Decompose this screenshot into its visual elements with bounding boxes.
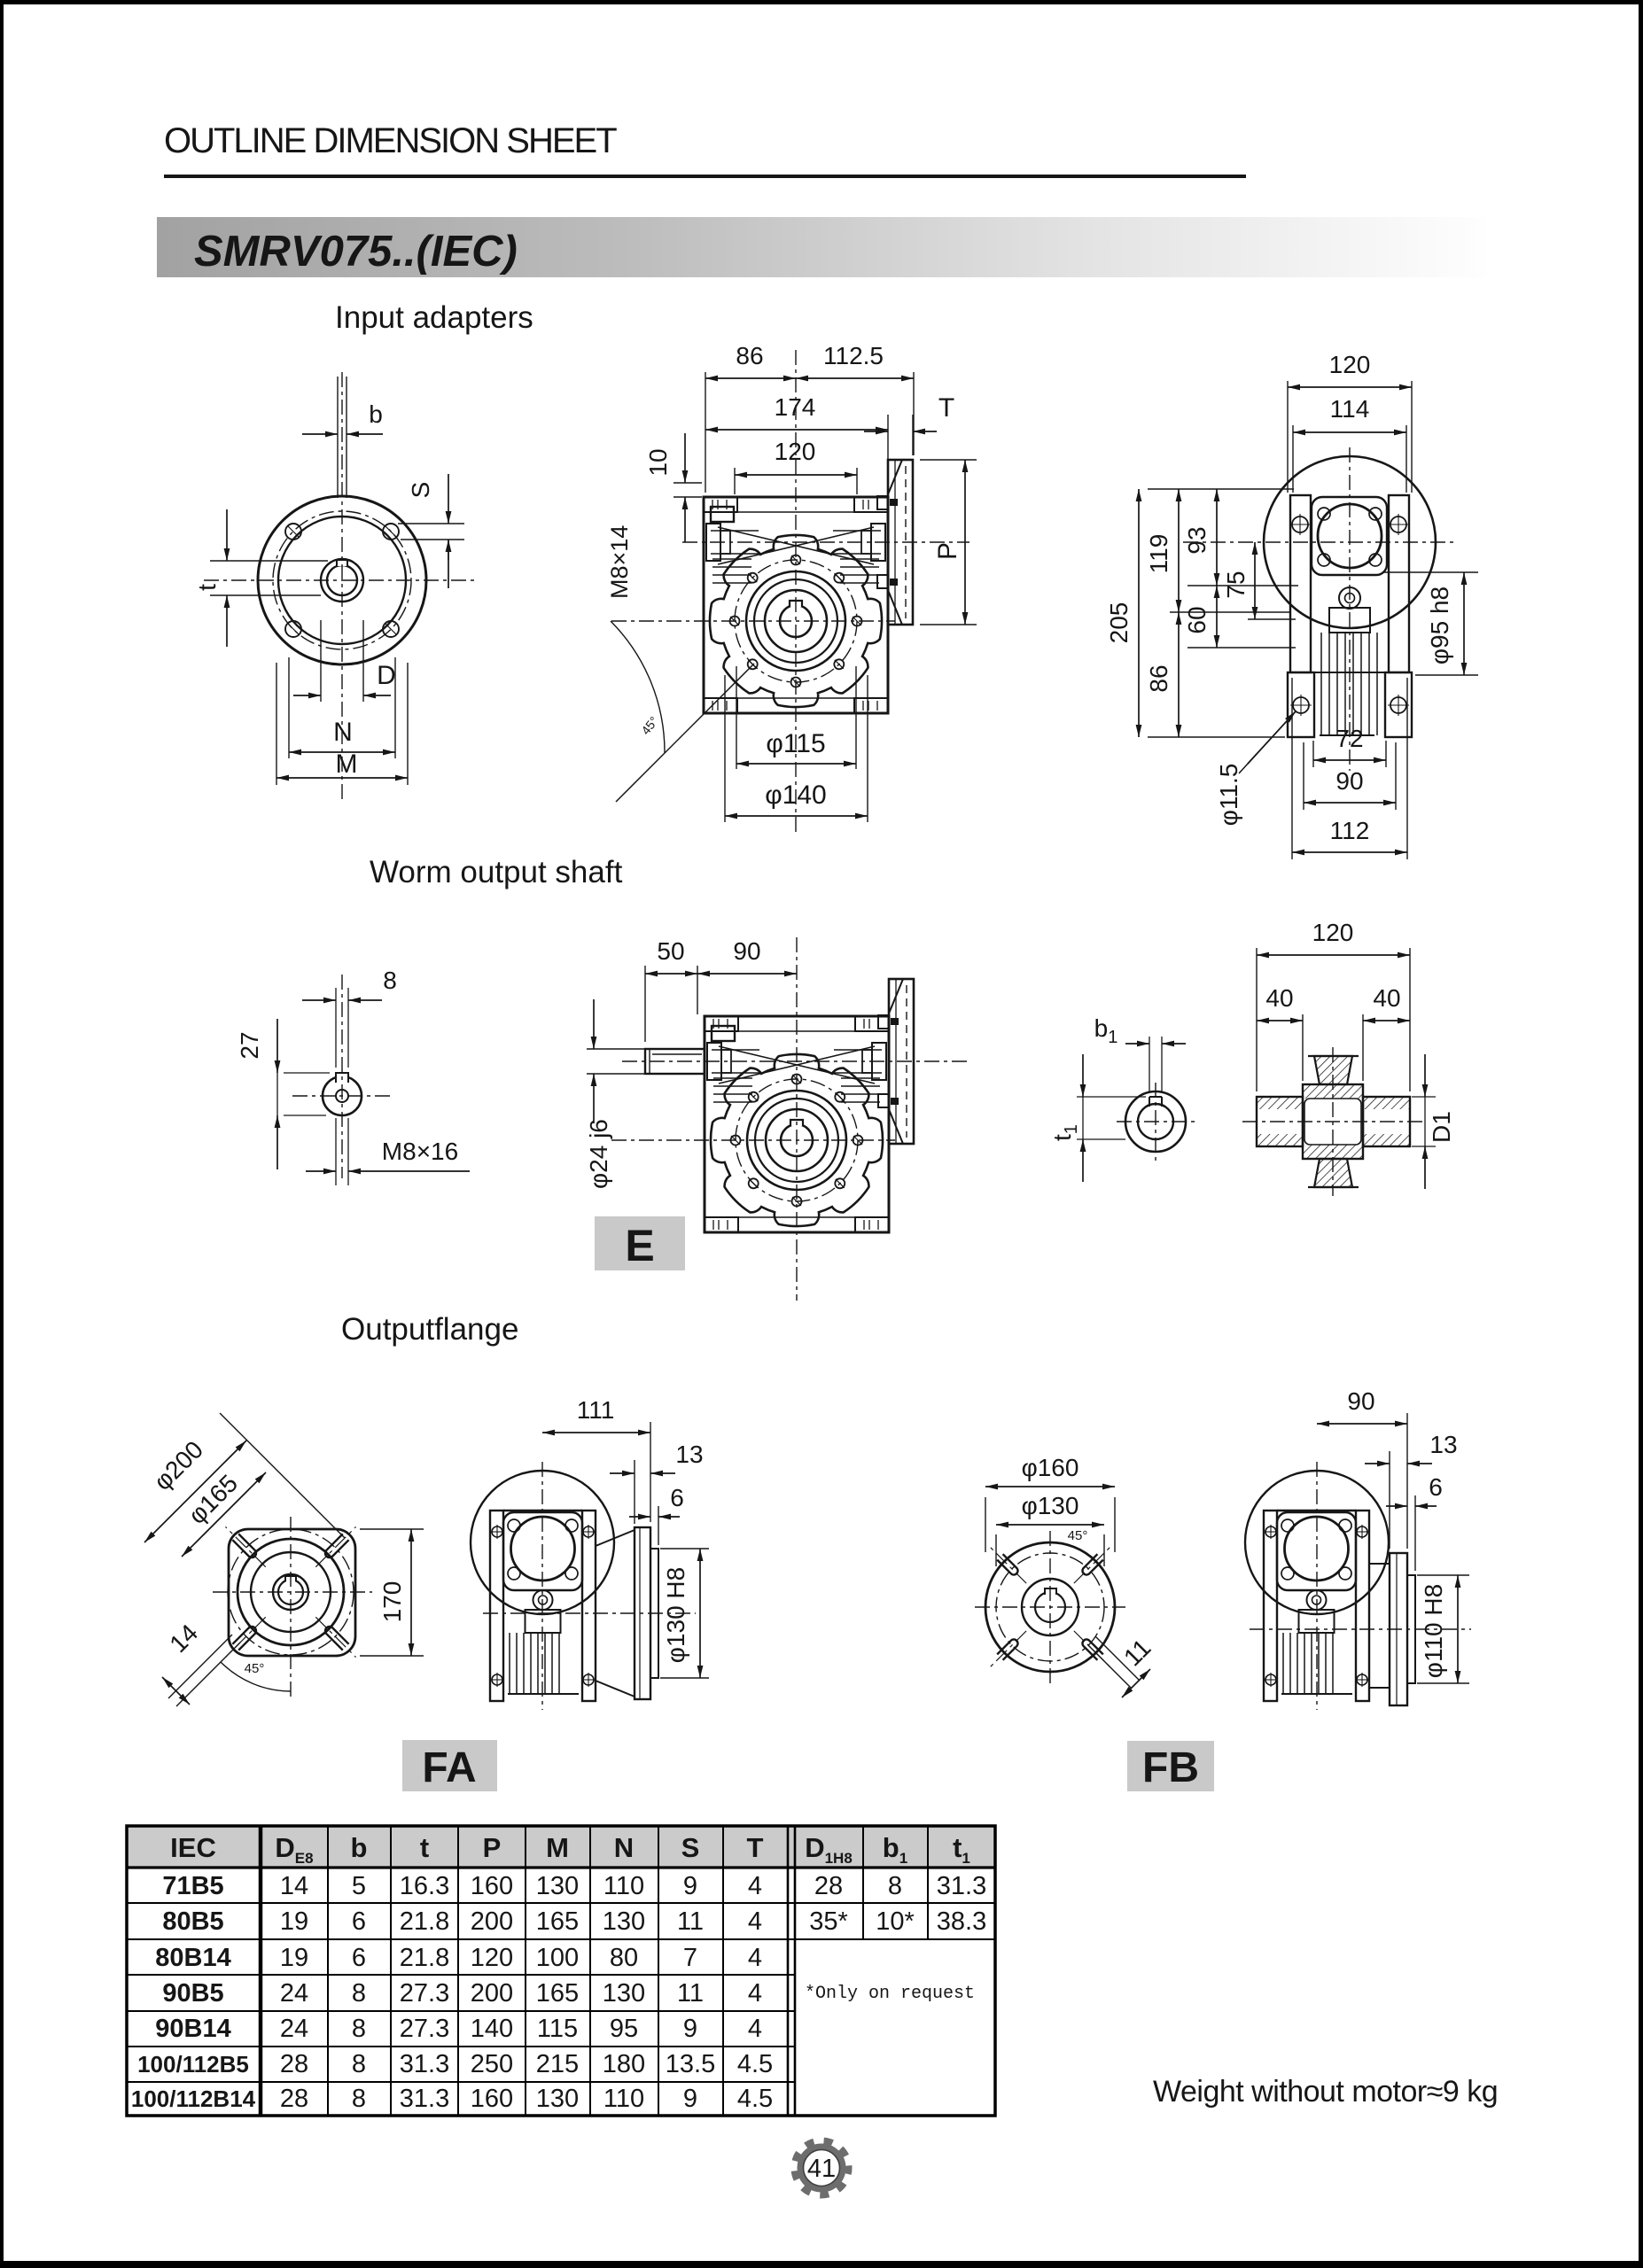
svg-text:41: 41 [807,2155,836,2183]
svg-text:111: 111 [577,1396,615,1424]
svg-text:24: 24 [280,1979,308,2008]
svg-text:P: P [483,1832,502,1863]
svg-text:50: 50 [657,937,684,965]
svg-text:φ115: φ115 [766,729,825,758]
svg-text:8: 8 [383,967,397,994]
svg-text:114: 114 [1330,395,1370,423]
svg-text:6: 6 [1429,1473,1443,1501]
svg-text:200: 200 [471,1979,513,2008]
svg-text:60: 60 [1183,606,1211,633]
svg-text:Outputflange: Outputflange [341,1312,518,1347]
svg-text:27: 27 [236,1031,263,1059]
svg-text:130: 130 [536,2085,579,2113]
svg-text:86: 86 [736,342,763,369]
svg-text:9: 9 [683,2015,697,2043]
svg-text:120: 120 [1329,351,1371,378]
svg-text:φ24 j6: φ24 j6 [585,1119,612,1189]
svg-text:38.3: 38.3 [937,1907,986,1936]
svg-text:8: 8 [888,1872,902,1900]
svg-text:SMRV075..(IEC): SMRV075..(IEC) [194,228,518,276]
svg-text:*Only on request: *Only on request [805,1984,975,2004]
svg-text:140: 140 [471,2015,513,2043]
svg-text:φ140: φ140 [765,781,827,810]
svg-text:115: 115 [537,2015,578,2043]
svg-text:119: 119 [1145,534,1172,574]
svg-text:72: 72 [1335,725,1363,752]
svg-text:40: 40 [1265,984,1293,1012]
svg-text:27.3: 27.3 [400,2015,449,2043]
svg-text:t: t [193,584,221,591]
svg-text:112.5: 112.5 [823,342,884,369]
svg-text:13.5: 13.5 [666,2050,715,2078]
svg-text:M: M [546,1832,569,1863]
svg-text:4: 4 [748,1944,762,1972]
svg-text:35*: 35* [809,1907,848,1936]
svg-text:14: 14 [280,1872,308,1900]
svg-text:N: N [333,718,353,747]
svg-text:FA: FA [422,1744,476,1791]
svg-text:D1: D1 [1428,1111,1455,1143]
svg-text:21.8: 21.8 [400,1944,449,1972]
svg-text:IEC: IEC [170,1832,216,1863]
svg-text:40: 40 [1373,984,1400,1012]
svg-text:19: 19 [280,1907,308,1936]
svg-text:Input adapters: Input adapters [335,300,533,335]
svg-text:P: P [933,542,962,560]
svg-text:M: M [336,750,358,779]
svg-text:130: 130 [603,1979,645,2008]
svg-text:4: 4 [748,1872,762,1900]
svg-text:75: 75 [1222,571,1250,598]
svg-text:11: 11 [677,1907,704,1936]
svg-text:φ130: φ130 [1022,1492,1079,1519]
svg-text:120: 120 [1312,919,1354,946]
svg-text:t: t [420,1832,429,1863]
svg-text:180: 180 [603,2050,645,2078]
svg-text:E: E [625,1221,654,1270]
svg-text:170: 170 [378,1581,406,1623]
svg-text:45°: 45° [1068,1528,1088,1543]
svg-text:13: 13 [675,1441,703,1468]
svg-text:FB: FB [1142,1744,1199,1791]
svg-text:31.3: 31.3 [400,2050,449,2078]
svg-text:160: 160 [471,1872,513,1900]
svg-text:45°: 45° [245,1661,265,1676]
svg-text:b: b [369,400,383,428]
svg-text:250: 250 [471,2050,513,2078]
svg-text:8: 8 [352,1979,366,2008]
svg-text:90B14: 90B14 [155,2015,230,2043]
svg-text:8: 8 [352,2050,366,2078]
svg-text:95: 95 [610,2015,638,2043]
svg-text:9: 9 [683,1872,697,1900]
svg-text:80B14: 80B14 [155,1944,230,1972]
svg-text:b: b [351,1832,368,1863]
svg-text:8: 8 [352,2015,366,2043]
svg-text:OUTLINE DIMENSION SHEET: OUTLINE DIMENSION SHEET [164,121,617,160]
svg-text:φ130 H8: φ130 H8 [662,1567,689,1663]
svg-text:90: 90 [1335,767,1363,795]
svg-text:165: 165 [536,1907,579,1936]
svg-text:28: 28 [280,2085,308,2113]
svg-text:4: 4 [748,1979,762,2008]
svg-text:110: 110 [603,2085,644,2113]
svg-text:9: 9 [683,2085,697,2113]
svg-text:21.8: 21.8 [400,1907,449,1936]
svg-text:6: 6 [352,1944,366,1972]
svg-text:S: S [407,482,434,499]
svg-text:93: 93 [1183,526,1211,554]
svg-text:10: 10 [644,448,672,476]
svg-text:S: S [681,1832,700,1863]
svg-text:8: 8 [352,2085,366,2113]
svg-text:φ11.5: φ11.5 [1215,764,1242,827]
svg-text:205: 205 [1105,602,1133,644]
svg-text:100: 100 [536,1944,579,1972]
svg-text:80: 80 [610,1944,638,1972]
svg-text:4: 4 [748,1907,762,1936]
svg-text:D: D [377,661,396,690]
svg-text:M8×16: M8×16 [382,1138,458,1165]
svg-text:7: 7 [683,1944,697,1972]
svg-text:80B5: 80B5 [162,1907,223,1936]
svg-text:16.3: 16.3 [400,1872,449,1900]
svg-text:10*: 10* [876,1907,915,1936]
svg-text:130: 130 [536,1872,579,1900]
svg-text:120: 120 [775,438,816,465]
svg-text:160: 160 [471,2085,513,2113]
svg-text:φ160: φ160 [1022,1454,1079,1481]
svg-text:Worm output shaft: Worm output shaft [370,855,623,889]
svg-text:100/112B14: 100/112B14 [131,2085,256,2112]
svg-text:28: 28 [814,1872,843,1900]
svg-text:5: 5 [352,1872,366,1900]
svg-text:31.3: 31.3 [400,2085,449,2113]
svg-text:φ95 h8: φ95 h8 [1426,586,1453,664]
svg-text:130: 130 [603,1907,645,1936]
svg-text:13: 13 [1429,1431,1457,1458]
svg-text:120: 120 [471,1944,513,1972]
svg-text:27.3: 27.3 [400,1979,449,2008]
svg-text:24: 24 [280,2015,308,2043]
svg-text:112: 112 [1330,817,1370,844]
svg-text:31.3: 31.3 [937,1872,986,1900]
svg-text:T: T [938,393,954,423]
svg-text:M8×14: M8×14 [606,525,633,599]
svg-text:11: 11 [677,1979,704,2008]
svg-text:28: 28 [280,2050,308,2078]
svg-text:4.5: 4.5 [737,2085,773,2113]
svg-text:4: 4 [748,2015,762,2043]
svg-text:165: 165 [536,1979,579,2008]
svg-text:N: N [614,1832,634,1863]
svg-text:174: 174 [775,393,816,421]
svg-text:φ110 H8: φ110 H8 [1420,1584,1447,1678]
svg-text:T: T [747,1832,764,1863]
svg-text:4.5: 4.5 [737,2050,773,2078]
svg-text:90B5: 90B5 [162,1979,223,2008]
svg-text:Weight without motor≈9 kg: Weight without motor≈9 kg [1153,2075,1498,2109]
svg-text:215: 215 [536,2050,579,2078]
svg-text:19: 19 [280,1944,308,1972]
svg-text:6: 6 [670,1484,684,1511]
svg-text:200: 200 [471,1907,513,1936]
svg-text:71B5: 71B5 [162,1872,223,1900]
svg-text:90: 90 [733,937,760,965]
svg-text:110: 110 [603,1872,644,1900]
svg-text:90: 90 [1347,1387,1374,1415]
svg-text:6: 6 [352,1907,366,1936]
svg-text:86: 86 [1145,664,1172,692]
svg-text:100/112B5: 100/112B5 [137,2051,249,2078]
